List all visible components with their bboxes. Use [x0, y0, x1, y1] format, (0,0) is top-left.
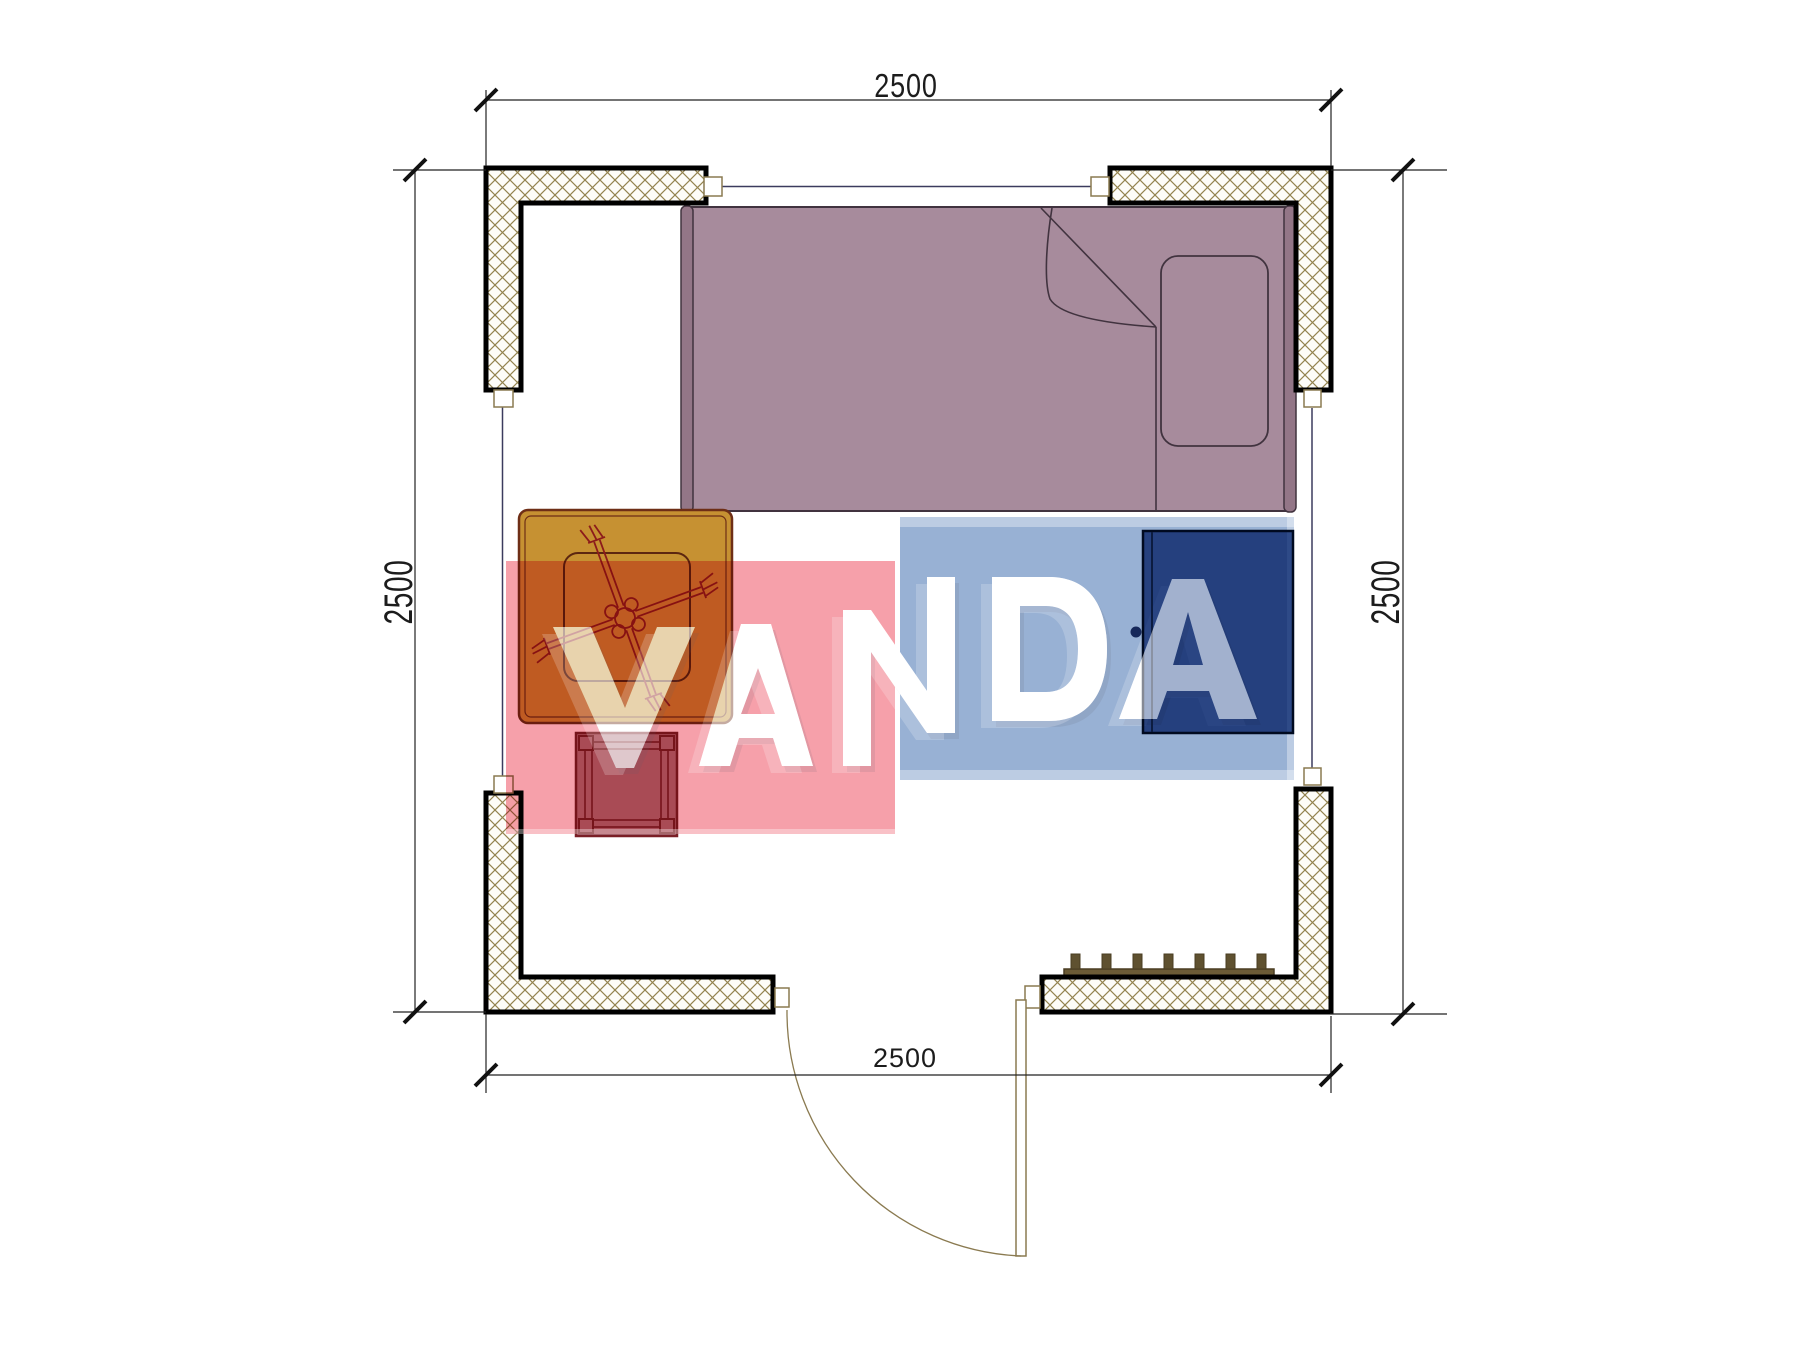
- svg-text:2500: 2500: [1364, 559, 1408, 624]
- svg-text:2500: 2500: [377, 559, 421, 624]
- svg-text:2500: 2500: [873, 1043, 937, 1073]
- svg-text:2500: 2500: [874, 69, 937, 105]
